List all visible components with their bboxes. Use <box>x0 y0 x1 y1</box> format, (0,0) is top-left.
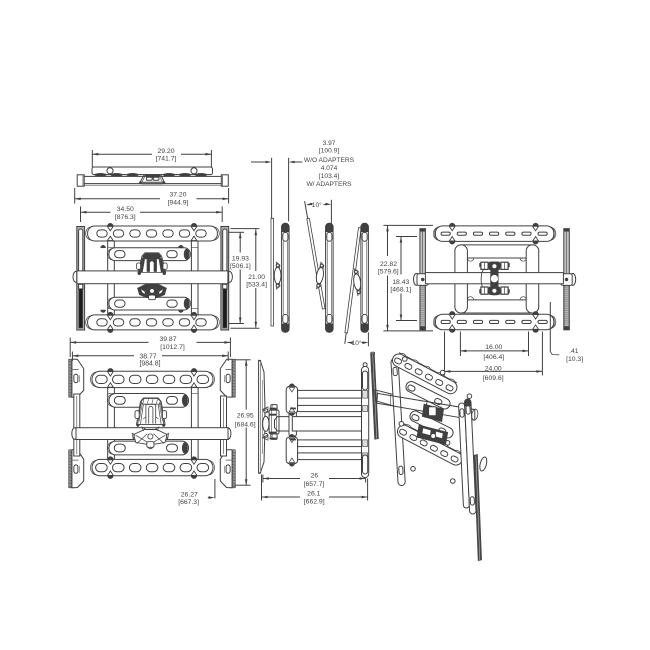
svg-text:[10.3]: [10.3] <box>566 356 583 363</box>
svg-text:[579.6]: [579.6] <box>378 269 399 276</box>
svg-text:[741.7]: [741.7] <box>156 156 177 163</box>
svg-text:26: 26 <box>311 472 319 479</box>
svg-text:21.00: 21.00 <box>248 274 265 281</box>
svg-text:29.20: 29.20 <box>157 148 174 155</box>
svg-text:10°: 10° <box>312 201 322 209</box>
svg-text:22.82: 22.82 <box>380 261 397 268</box>
svg-text:26.27: 26.27 <box>181 491 198 498</box>
svg-text:38.77: 38.77 <box>139 353 156 360</box>
svg-text:[662.9]: [662.9] <box>304 498 325 505</box>
svg-text:[609.6]: [609.6] <box>483 375 504 382</box>
svg-text:[876.3]: [876.3] <box>115 214 136 221</box>
svg-text:10°: 10° <box>352 339 362 347</box>
svg-text:[667.3]: [667.3] <box>178 499 199 506</box>
svg-text:[657.7]: [657.7] <box>304 481 325 488</box>
svg-text:W/O ADAPTERS: W/O ADAPTERS <box>304 157 355 164</box>
svg-text:37.20: 37.20 <box>169 192 186 199</box>
svg-text:39.87: 39.87 <box>159 336 176 343</box>
svg-text:[406.4]: [406.4] <box>483 354 504 361</box>
svg-text:[984.8]: [984.8] <box>139 361 160 368</box>
svg-text:34.50: 34.50 <box>117 206 134 213</box>
svg-text:26.95: 26.95 <box>237 413 254 420</box>
svg-text:16.00: 16.00 <box>485 344 502 351</box>
svg-text:4.074: 4.074 <box>321 165 338 172</box>
svg-text:3.97: 3.97 <box>323 140 336 147</box>
svg-text:18.43: 18.43 <box>392 279 409 286</box>
svg-text:19.93: 19.93 <box>232 255 249 262</box>
svg-text:[533.4]: [533.4] <box>246 282 267 289</box>
svg-text:.41: .41 <box>569 348 579 355</box>
svg-text:W/ ADAPTERS: W/ ADAPTERS <box>306 181 352 188</box>
svg-text:[944.9]: [944.9] <box>168 200 189 207</box>
svg-text:[506.1]: [506.1] <box>230 263 251 270</box>
svg-text:[468.1]: [468.1] <box>390 286 411 293</box>
svg-text:[103.4]: [103.4] <box>319 173 339 180</box>
svg-text:[1012.7]: [1012.7] <box>160 344 185 351</box>
svg-text:[100.9]: [100.9] <box>319 148 339 155</box>
svg-text:[684.6]: [684.6] <box>235 421 256 428</box>
svg-text:26.1: 26.1 <box>307 490 320 497</box>
